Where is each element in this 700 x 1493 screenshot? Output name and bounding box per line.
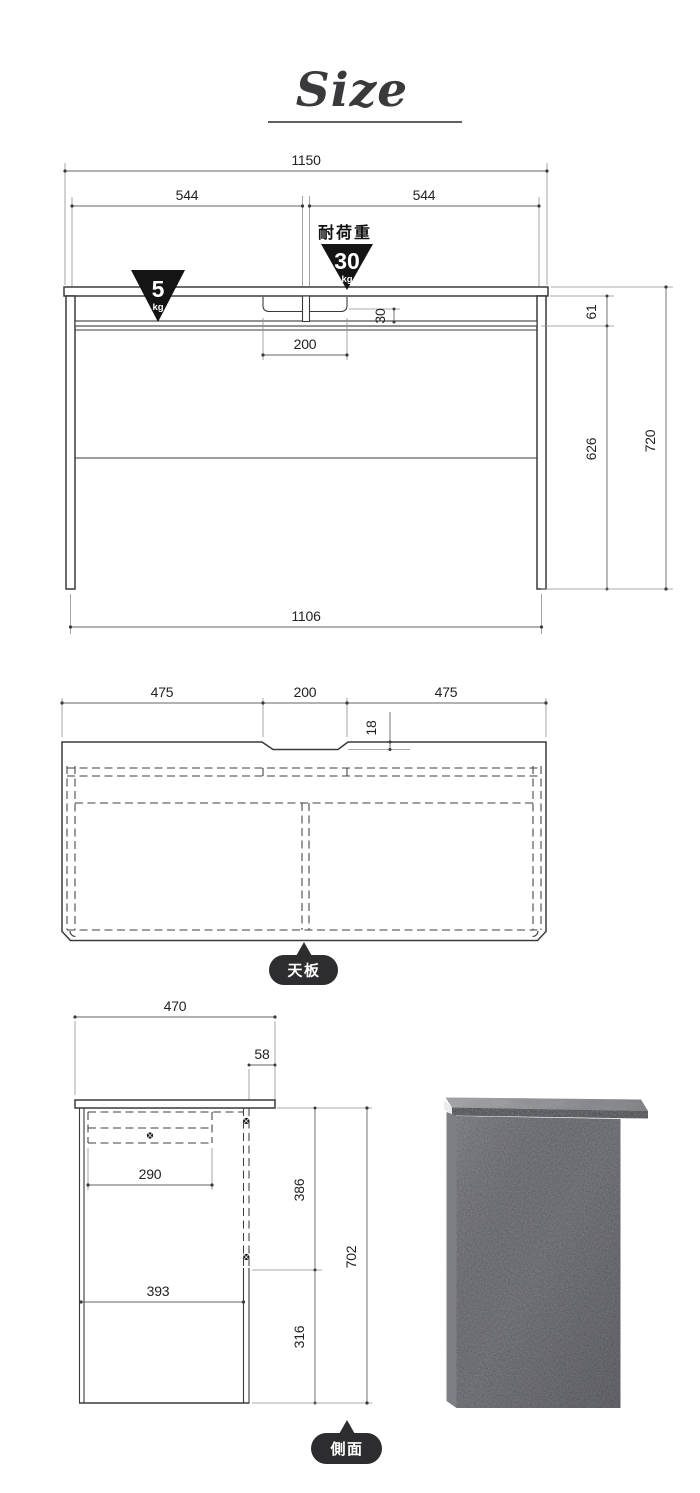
dim-panel-depth: 393 — [79, 1283, 245, 1304]
dim-leg-clearance-label: 626 — [583, 437, 599, 460]
desk-top-board — [64, 287, 548, 296]
page-title: Size — [268, 63, 462, 122]
photo-side-panel — [447, 1112, 621, 1408]
screw-icons — [147, 1118, 250, 1260]
dim-shelf-depth-label: 290 — [139, 1166, 162, 1182]
dim-front-total-height: 720 — [551, 285, 673, 590]
side-desk-drawing — [75, 1100, 275, 1403]
dim-top-spans: 475 200 475 — [60, 684, 547, 737]
product-photo — [444, 1098, 648, 1409]
right-leg — [537, 296, 546, 589]
dim-front-total-width: 1150 — [63, 152, 548, 285]
top-view: 475 200 475 18 天板 — [60, 684, 547, 985]
load-capacity-label: 耐荷重 — [318, 223, 372, 242]
dim-lower-height: 316 — [291, 1270, 317, 1405]
side-view: 470 58 290 — [73, 998, 382, 1464]
dim-notch-depth-label: 18 — [363, 720, 379, 736]
dim-upper-height-label: 386 — [291, 1178, 307, 1201]
dim-top-overhang: 58 — [248, 1046, 277, 1105]
dim-front-right-span-label: 544 — [413, 187, 436, 203]
dim-front-left-span-label: 544 — [176, 187, 199, 203]
dim-shelf-depth: 290 — [86, 1148, 213, 1190]
dim-panel-depth-label: 393 — [147, 1283, 170, 1299]
side-panel-hidden-edge — [244, 1108, 250, 1268]
front-view: 1150 544 544 耐荷重 — [63, 152, 673, 634]
size-diagram-page: Size 1150 544 544 — [0, 0, 700, 1493]
load-5-value: 5 — [152, 276, 165, 302]
dim-front-total-height-label: 720 — [642, 429, 658, 452]
dim-top-right-span-label: 475 — [435, 684, 458, 700]
dim-top-notch-width-label: 200 — [294, 684, 317, 700]
dim-apron-height: 61 — [541, 295, 614, 328]
top-board-outline — [62, 742, 546, 941]
tenban-badge-label: 天板 — [287, 962, 320, 980]
dim-lower-height-label: 316 — [291, 1325, 307, 1348]
side-top-board — [75, 1100, 275, 1108]
dim-side-total-height: 702 — [252, 1106, 372, 1404]
load-30-value: 30 — [334, 248, 360, 274]
dim-apron-height-label: 61 — [583, 304, 599, 320]
left-leg — [66, 296, 75, 589]
dim-tray-width-label: 200 — [294, 336, 317, 352]
badge-pointer-up-icon — [339, 1420, 356, 1435]
badge-pointer-up-icon — [296, 942, 313, 957]
dim-front-inner-width: 1106 — [69, 594, 543, 634]
dim-side-total-height-label: 702 — [343, 1245, 359, 1268]
photo-top-board — [446, 1098, 649, 1119]
page-title-text: Size — [296, 63, 408, 118]
size-diagram: Size 1150 544 544 — [0, 0, 700, 1493]
load-capacity-30kg-triangle: 30 kg — [321, 244, 373, 290]
sokumen-badge-label: 側面 — [329, 1440, 363, 1458]
side-back-panel-lines — [80, 1108, 85, 1403]
front-desk-drawing — [64, 287, 548, 589]
load-5-unit: kg — [152, 302, 163, 313]
dim-top-left-span-label: 475 — [151, 684, 174, 700]
center-divider — [303, 296, 310, 322]
sokumen-badge: 側面 — [311, 1420, 382, 1464]
dim-front-total-width-label: 1150 — [291, 152, 321, 168]
side-apron-hidden-lines — [88, 1112, 244, 1143]
dim-top-overhang-label: 58 — [254, 1046, 270, 1062]
tenban-badge: 天板 — [269, 942, 338, 985]
dim-side-total-depth: 470 — [73, 998, 276, 1106]
load-30-unit: kg — [341, 274, 352, 285]
dim-tray-depth-label: 30 — [372, 308, 388, 324]
dim-side-total-depth-label: 470 — [164, 998, 187, 1014]
screw-cross-marks — [148, 1119, 249, 1259]
dim-front-inner-width-label: 1106 — [291, 608, 321, 624]
side-panel-solid-edge — [244, 1268, 250, 1403]
dim-front-left-span: 544 — [70, 187, 304, 292]
load-capacity-text: 耐荷重 — [318, 223, 372, 242]
dim-leg-clearance: 626 — [541, 326, 673, 591]
